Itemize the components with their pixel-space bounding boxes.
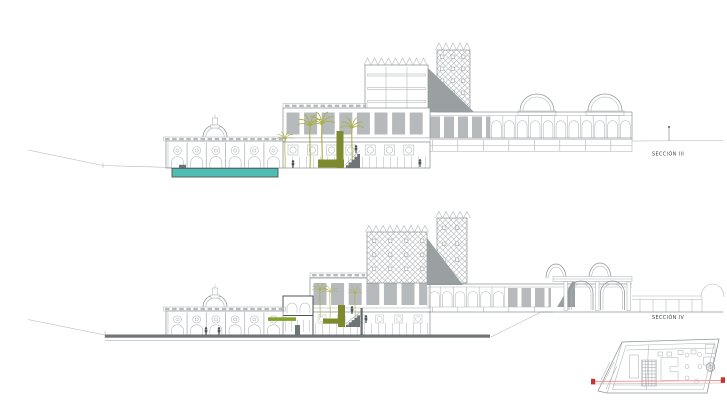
tall-block — [364, 58, 428, 112]
section-iv-drawing: SECCIÓN IV — [28, 212, 724, 341]
sections-drawing: SECCIÓN III — [0, 0, 727, 400]
base-slab — [105, 335, 490, 338]
cut-marker-left — [591, 379, 595, 385]
section-iii-label: SECCIÓN III — [652, 151, 684, 158]
ground-line-right — [632, 141, 723, 142]
key-plan — [591, 339, 725, 393]
pavilion-building — [164, 115, 286, 169]
ground-line-left — [28, 320, 105, 336]
colonnade-wing — [428, 112, 632, 152]
green-roof — [268, 317, 296, 321]
lattice-screen-block — [366, 226, 429, 284]
section-iv-label: SECCIÓN IV — [652, 314, 685, 321]
pool-deck-step — [179, 165, 186, 168]
cut-pavilion — [283, 296, 313, 335]
cut-marker-right — [721, 377, 725, 383]
pavilion-building — [164, 285, 286, 336]
arcade — [553, 277, 702, 313]
ground-line-left — [28, 150, 172, 168]
terrain-slope — [490, 313, 540, 338]
pool — [172, 168, 278, 177]
section-iii-drawing: SECCIÓN III — [28, 43, 723, 177]
architectural-sheet: SECCIÓN III — [0, 0, 727, 400]
